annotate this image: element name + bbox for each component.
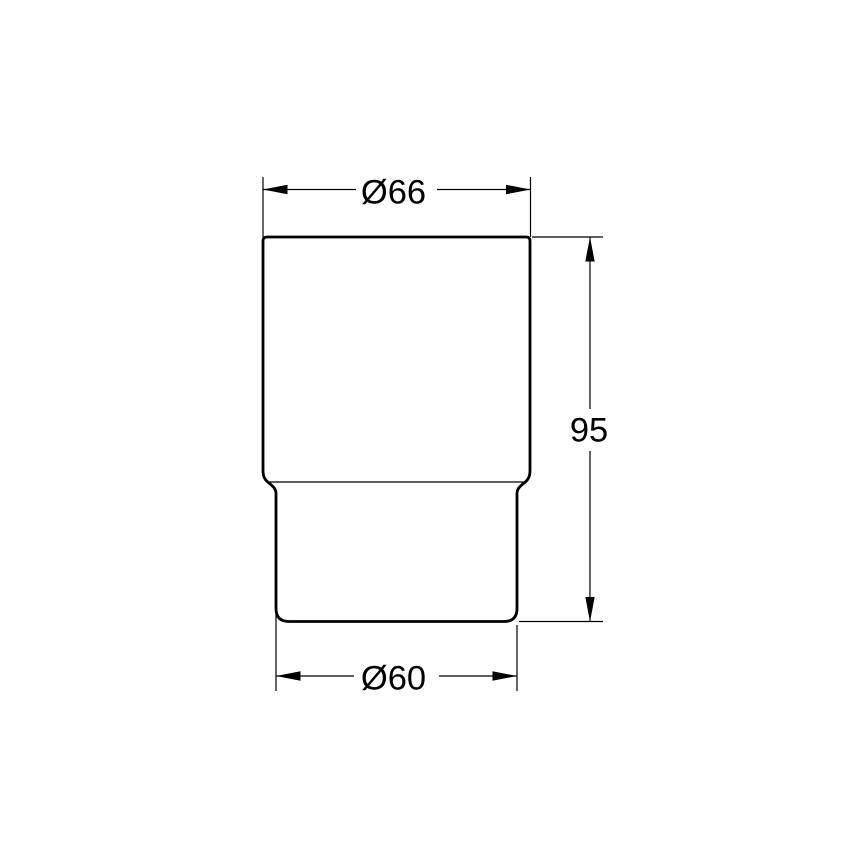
svg-text:Ø66: Ø66 [361, 174, 426, 212]
svg-text:95: 95 [570, 412, 608, 450]
svg-text:Ø60: Ø60 [361, 660, 426, 698]
